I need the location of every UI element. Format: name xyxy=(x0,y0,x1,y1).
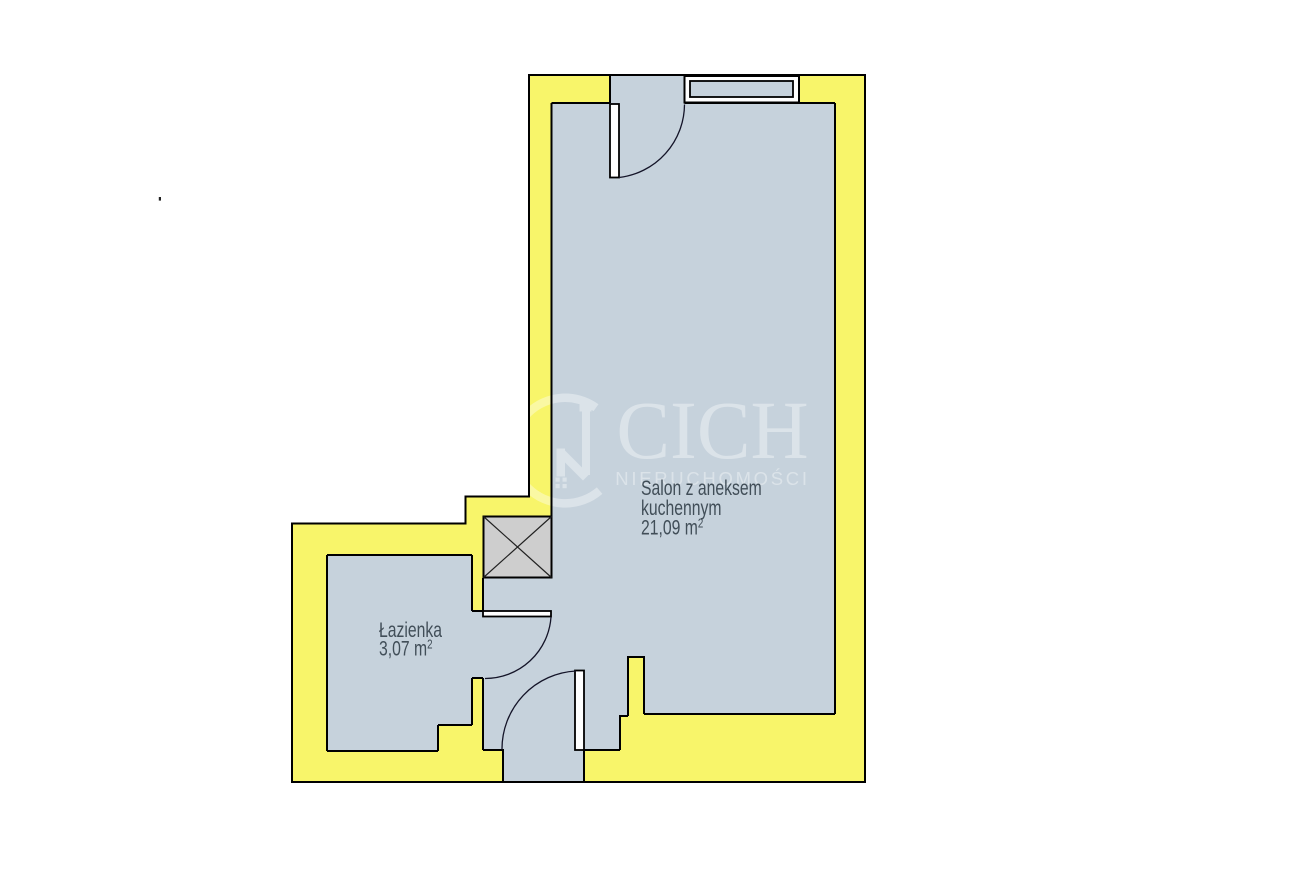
svg-text:21,09 m2: 21,09 m2 xyxy=(641,515,703,539)
svg-text:3,07 m2: 3,07 m2 xyxy=(379,636,433,660)
svg-text:CICH: CICH xyxy=(616,384,808,476)
